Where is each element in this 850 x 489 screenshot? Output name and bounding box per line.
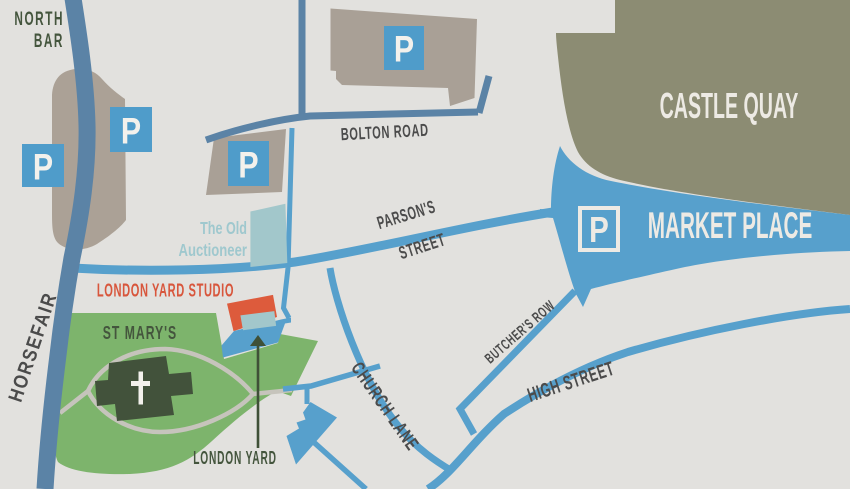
svg-text:P: P: [238, 145, 258, 187]
svg-text:BAR: BAR: [34, 31, 64, 51]
svg-text:P: P: [33, 147, 53, 189]
svg-text:MARKET PLACE: MARKET PLACE: [648, 206, 813, 247]
svg-text:P: P: [394, 29, 414, 71]
svg-text:P: P: [589, 209, 609, 249]
svg-text:CASTLE QUAY: CASTLE QUAY: [660, 87, 799, 127]
svg-text:LONDON YARD: LONDON YARD: [193, 448, 277, 469]
svg-text:NORTH: NORTH: [14, 9, 64, 29]
svg-text:The Old: The Old: [200, 219, 247, 239]
svg-text:P: P: [121, 111, 141, 153]
svg-text:LONDON YARD STUDIO: LONDON YARD STUDIO: [97, 281, 234, 302]
svg-text:ST MARY'S: ST MARY'S: [103, 324, 177, 344]
svg-text:Auctioneer: Auctioneer: [179, 241, 247, 260]
